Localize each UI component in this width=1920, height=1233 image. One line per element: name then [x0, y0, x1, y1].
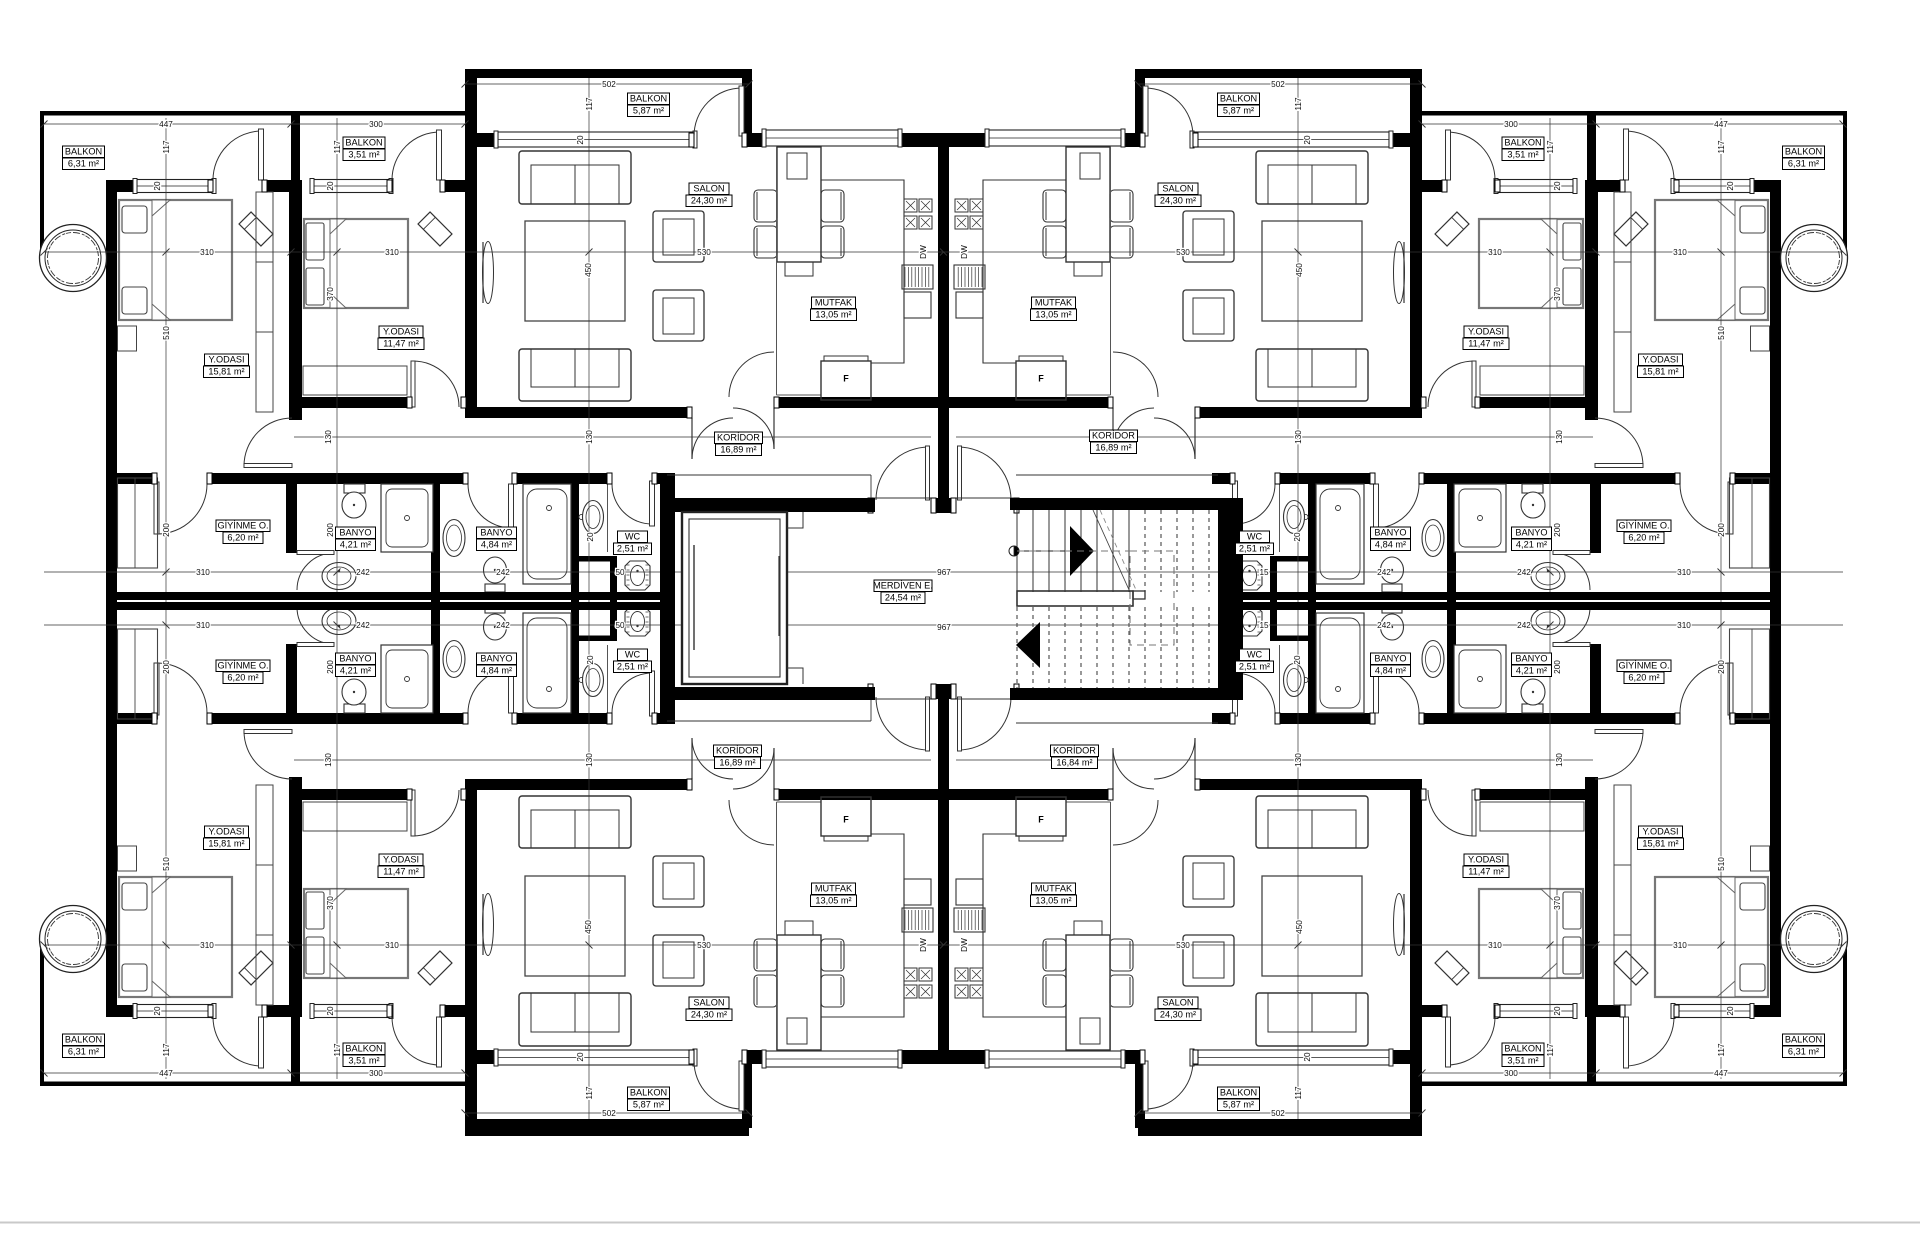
- svg-text:2,51 m²: 2,51 m²: [1239, 662, 1270, 672]
- svg-text:6,31 m²: 6,31 m²: [68, 159, 99, 169]
- svg-text:200: 200: [1553, 660, 1562, 674]
- svg-text:16,89 m²: 16,89 m²: [719, 758, 755, 768]
- svg-text:15,81 m²: 15,81 m²: [208, 367, 244, 377]
- svg-text:200: 200: [162, 660, 171, 674]
- svg-text:310: 310: [196, 621, 210, 630]
- svg-text:Y.ODASI: Y.ODASI: [383, 855, 419, 865]
- svg-text:4,84 m²: 4,84 m²: [1375, 666, 1406, 676]
- svg-text:370: 370: [1553, 896, 1562, 910]
- svg-text:117: 117: [162, 1043, 171, 1056]
- svg-text:130: 130: [1555, 430, 1564, 444]
- svg-text:20: 20: [1553, 1006, 1562, 1016]
- svg-text:BANYO: BANYO: [339, 528, 371, 538]
- svg-text:Y.ODASI: Y.ODASI: [1642, 355, 1678, 365]
- svg-text:WC: WC: [625, 532, 641, 542]
- svg-text:447: 447: [1714, 120, 1728, 129]
- svg-text:MUTFAK: MUTFAK: [1035, 298, 1073, 308]
- svg-text:20: 20: [1293, 655, 1302, 665]
- svg-text:MUTFAK: MUTFAK: [815, 298, 853, 308]
- svg-text:KORİDOR: KORİDOR: [1053, 746, 1096, 756]
- svg-text:130: 130: [585, 753, 594, 767]
- svg-text:GİYİNME O.: GİYİNME O.: [217, 521, 268, 531]
- svg-text:MUTFAK: MUTFAK: [815, 884, 853, 894]
- svg-text:130: 130: [1294, 753, 1303, 767]
- svg-text:SALON: SALON: [693, 998, 724, 1008]
- svg-text:15,81 m²: 15,81 m²: [1642, 367, 1678, 377]
- svg-text:370: 370: [326, 896, 335, 910]
- svg-text:242: 242: [1517, 568, 1531, 577]
- svg-text:SALON: SALON: [1162, 998, 1193, 1008]
- svg-text:11,47 m²: 11,47 m²: [383, 339, 419, 349]
- svg-text:6,20 m²: 6,20 m²: [1628, 533, 1659, 543]
- svg-text:15: 15: [1259, 621, 1269, 630]
- svg-text:20: 20: [1726, 1006, 1735, 1016]
- svg-text:310: 310: [196, 568, 210, 577]
- svg-text:20: 20: [1303, 135, 1312, 145]
- svg-text:4,84 m²: 4,84 m²: [1375, 540, 1406, 550]
- svg-text:KORİDOR: KORİDOR: [1092, 431, 1135, 441]
- svg-text:5,87 m²: 5,87 m²: [1223, 106, 1254, 116]
- svg-text:242: 242: [1377, 568, 1391, 577]
- svg-text:F: F: [1038, 374, 1044, 384]
- svg-text:WC: WC: [1247, 650, 1263, 660]
- svg-text:BALKON: BALKON: [1785, 1035, 1822, 1045]
- svg-text:50: 50: [615, 621, 625, 630]
- svg-text:20: 20: [153, 181, 162, 191]
- svg-text:F: F: [843, 374, 849, 384]
- svg-text:F: F: [1038, 815, 1044, 825]
- svg-text:11,47 m²: 11,47 m²: [1468, 867, 1504, 877]
- svg-text:310: 310: [1488, 941, 1502, 950]
- svg-text:450: 450: [584, 263, 593, 277]
- svg-text:DW: DW: [960, 938, 969, 952]
- svg-text:BALKON: BALKON: [345, 138, 382, 148]
- svg-text:24,30 m²: 24,30 m²: [691, 1010, 727, 1020]
- svg-text:WC: WC: [1247, 532, 1263, 542]
- svg-text:20: 20: [586, 655, 595, 665]
- svg-text:Y.ODASI: Y.ODASI: [208, 355, 244, 365]
- svg-text:24,54 m²: 24,54 m²: [885, 593, 921, 603]
- svg-text:4,21 m²: 4,21 m²: [1516, 666, 1547, 676]
- svg-text:13,05 m²: 13,05 m²: [815, 896, 851, 906]
- svg-text:GİYİNME O.: GİYİNME O.: [217, 661, 268, 671]
- svg-text:530: 530: [1176, 248, 1190, 257]
- svg-text:KORİDOR: KORİDOR: [716, 746, 759, 756]
- svg-text:MUTFAK: MUTFAK: [1035, 884, 1073, 894]
- svg-text:117: 117: [1294, 97, 1303, 110]
- svg-text:20: 20: [576, 135, 585, 145]
- svg-text:16,84 m²: 16,84 m²: [1056, 758, 1092, 768]
- svg-text:130: 130: [1555, 753, 1564, 767]
- svg-text:BALKON: BALKON: [1785, 147, 1822, 157]
- svg-text:300: 300: [369, 120, 383, 129]
- svg-text:502: 502: [602, 1109, 616, 1118]
- svg-text:310: 310: [1677, 568, 1691, 577]
- svg-text:DW: DW: [919, 245, 928, 259]
- svg-text:447: 447: [1714, 1069, 1728, 1078]
- svg-text:20: 20: [153, 1006, 162, 1016]
- svg-text:6,31 m²: 6,31 m²: [1788, 1047, 1819, 1057]
- svg-text:310: 310: [200, 941, 214, 950]
- svg-text:Y.ODASI: Y.ODASI: [1468, 327, 1504, 337]
- svg-text:242: 242: [1377, 621, 1391, 630]
- svg-text:BANYO: BANYO: [1374, 528, 1406, 538]
- svg-text:4,84 m²: 4,84 m²: [481, 540, 512, 550]
- svg-text:BANYO: BANYO: [480, 654, 512, 664]
- svg-text:BALKON: BALKON: [1220, 1088, 1257, 1098]
- svg-text:GİYİNME O.: GİYİNME O.: [1618, 661, 1669, 671]
- svg-text:117: 117: [1546, 1043, 1555, 1056]
- svg-text:BANYO: BANYO: [1374, 654, 1406, 664]
- svg-text:15,81 m²: 15,81 m²: [1642, 839, 1678, 849]
- svg-text:BALKON: BALKON: [630, 94, 667, 104]
- svg-text:310: 310: [1673, 941, 1687, 950]
- svg-text:3,51 m²: 3,51 m²: [1507, 150, 1538, 160]
- svg-text:200: 200: [326, 523, 335, 537]
- svg-text:117: 117: [585, 1086, 594, 1099]
- svg-text:15: 15: [1259, 568, 1269, 577]
- svg-text:502: 502: [1271, 80, 1285, 89]
- svg-text:200: 200: [1717, 523, 1726, 537]
- svg-text:310: 310: [385, 941, 399, 950]
- svg-text:Y.ODASI: Y.ODASI: [383, 327, 419, 337]
- svg-text:242: 242: [1517, 621, 1531, 630]
- svg-text:20: 20: [1553, 181, 1562, 191]
- svg-text:BALKON: BALKON: [345, 1044, 382, 1054]
- svg-text:2,51 m²: 2,51 m²: [1239, 544, 1270, 554]
- svg-text:15,81 m²: 15,81 m²: [208, 839, 244, 849]
- svg-text:530: 530: [697, 248, 711, 257]
- svg-text:WC: WC: [625, 650, 641, 660]
- svg-text:310: 310: [385, 248, 399, 257]
- svg-text:6,20 m²: 6,20 m²: [227, 673, 258, 683]
- svg-text:117: 117: [585, 97, 594, 110]
- svg-text:13,05 m²: 13,05 m²: [1035, 896, 1071, 906]
- svg-text:BALKON: BALKON: [1504, 138, 1541, 148]
- svg-text:20: 20: [1293, 532, 1302, 542]
- svg-text:6,20 m²: 6,20 m²: [227, 533, 258, 543]
- svg-text:117: 117: [333, 140, 342, 153]
- svg-text:967: 967: [937, 623, 951, 632]
- svg-text:BALKON: BALKON: [65, 1035, 102, 1045]
- svg-text:310: 310: [200, 248, 214, 257]
- svg-text:5,87 m²: 5,87 m²: [633, 106, 664, 116]
- svg-text:200: 200: [326, 660, 335, 674]
- svg-text:370: 370: [326, 287, 335, 301]
- svg-text:117: 117: [1717, 1043, 1726, 1056]
- svg-text:530: 530: [1176, 941, 1190, 950]
- svg-text:967: 967: [937, 568, 951, 577]
- svg-text:4,21 m²: 4,21 m²: [340, 666, 371, 676]
- svg-text:3,51 m²: 3,51 m²: [1507, 1056, 1538, 1066]
- svg-text:Y.ODASI: Y.ODASI: [1468, 855, 1504, 865]
- svg-text:BANYO: BANYO: [1515, 528, 1547, 538]
- svg-text:510: 510: [1717, 326, 1726, 340]
- svg-text:117: 117: [1717, 140, 1726, 153]
- svg-text:13,05 m²: 13,05 m²: [815, 310, 851, 320]
- svg-text:450: 450: [1295, 920, 1304, 934]
- svg-text:BALKON: BALKON: [1504, 1044, 1541, 1054]
- svg-text:117: 117: [333, 1043, 342, 1056]
- svg-text:BANYO: BANYO: [480, 528, 512, 538]
- svg-text:16,89 m²: 16,89 m²: [1095, 443, 1131, 453]
- svg-text:3,51 m²: 3,51 m²: [348, 150, 379, 160]
- svg-text:20: 20: [586, 532, 595, 542]
- svg-text:117: 117: [162, 140, 171, 153]
- svg-text:11,47 m²: 11,47 m²: [1468, 339, 1504, 349]
- svg-text:BANYO: BANYO: [1515, 654, 1547, 664]
- svg-text:447: 447: [159, 1069, 173, 1078]
- svg-text:300: 300: [1504, 1069, 1518, 1078]
- svg-text:2,51 m²: 2,51 m²: [617, 662, 648, 672]
- svg-text:117: 117: [1294, 1086, 1303, 1099]
- svg-text:130: 130: [324, 430, 333, 444]
- svg-text:242: 242: [356, 621, 370, 630]
- svg-text:242: 242: [496, 621, 510, 630]
- svg-text:Y.ODASI: Y.ODASI: [208, 827, 244, 837]
- svg-text:447: 447: [159, 120, 173, 129]
- svg-text:20: 20: [326, 181, 335, 191]
- svg-text:5,87 m²: 5,87 m²: [633, 1100, 664, 1110]
- svg-text:300: 300: [369, 1069, 383, 1078]
- svg-text:MERDİVEN E.: MERDİVEN E.: [873, 581, 933, 591]
- svg-text:450: 450: [584, 920, 593, 934]
- svg-text:502: 502: [1271, 1109, 1285, 1118]
- svg-text:200: 200: [1717, 660, 1726, 674]
- svg-text:20: 20: [1726, 181, 1735, 191]
- svg-text:510: 510: [162, 326, 171, 340]
- svg-text:200: 200: [1553, 523, 1562, 537]
- svg-text:13,05 m²: 13,05 m²: [1035, 310, 1071, 320]
- svg-text:300: 300: [1504, 120, 1518, 129]
- svg-text:450: 450: [1295, 263, 1304, 277]
- svg-text:5,87 m²: 5,87 m²: [1223, 1100, 1254, 1110]
- svg-text:24,30 m²: 24,30 m²: [691, 196, 727, 206]
- svg-text:310: 310: [1673, 248, 1687, 257]
- svg-text:3,51 m²: 3,51 m²: [348, 1056, 379, 1066]
- svg-text:510: 510: [162, 857, 171, 871]
- svg-text:6,31 m²: 6,31 m²: [1788, 159, 1819, 169]
- svg-text:530: 530: [697, 941, 711, 950]
- svg-text:200: 200: [162, 523, 171, 537]
- svg-text:F: F: [843, 815, 849, 825]
- svg-text:20: 20: [1303, 1052, 1312, 1062]
- svg-text:4,21 m²: 4,21 m²: [1516, 540, 1547, 550]
- svg-text:DW: DW: [919, 938, 928, 952]
- svg-text:20: 20: [576, 1052, 585, 1062]
- svg-text:117: 117: [1546, 140, 1555, 153]
- svg-text:DW: DW: [960, 245, 969, 259]
- svg-text:BALKON: BALKON: [630, 1088, 667, 1098]
- svg-text:310: 310: [1488, 248, 1502, 257]
- svg-text:510: 510: [1717, 857, 1726, 871]
- svg-text:130: 130: [324, 753, 333, 767]
- svg-text:Y.ODASI: Y.ODASI: [1642, 827, 1678, 837]
- svg-text:6,20 m²: 6,20 m²: [1628, 673, 1659, 683]
- svg-text:130: 130: [1294, 430, 1303, 444]
- svg-text:20: 20: [326, 1006, 335, 1016]
- svg-text:502: 502: [602, 80, 616, 89]
- svg-text:2,51 m²: 2,51 m²: [617, 544, 648, 554]
- svg-text:6,31 m²: 6,31 m²: [68, 1047, 99, 1057]
- svg-text:310: 310: [1677, 621, 1691, 630]
- svg-text:GİYİNME O.: GİYİNME O.: [1618, 521, 1669, 531]
- svg-text:24,30 m²: 24,30 m²: [1160, 196, 1196, 206]
- svg-text:50: 50: [615, 568, 625, 577]
- svg-text:242: 242: [496, 568, 510, 577]
- svg-text:4,21 m²: 4,21 m²: [340, 540, 371, 550]
- svg-text:242: 242: [356, 568, 370, 577]
- svg-text:KORİDOR: KORİDOR: [717, 433, 760, 443]
- svg-text:11,47 m²: 11,47 m²: [383, 867, 419, 877]
- svg-text:130: 130: [585, 430, 594, 444]
- svg-text:370: 370: [1553, 287, 1562, 301]
- svg-text:24,30 m²: 24,30 m²: [1160, 1010, 1196, 1020]
- svg-text:BALKON: BALKON: [1220, 94, 1257, 104]
- svg-text:16,89 m²: 16,89 m²: [720, 445, 756, 455]
- svg-text:SALON: SALON: [1162, 184, 1193, 194]
- svg-text:BALKON: BALKON: [65, 147, 102, 157]
- svg-text:BANYO: BANYO: [339, 654, 371, 664]
- svg-text:SALON: SALON: [693, 184, 724, 194]
- svg-text:4,84 m²: 4,84 m²: [481, 666, 512, 676]
